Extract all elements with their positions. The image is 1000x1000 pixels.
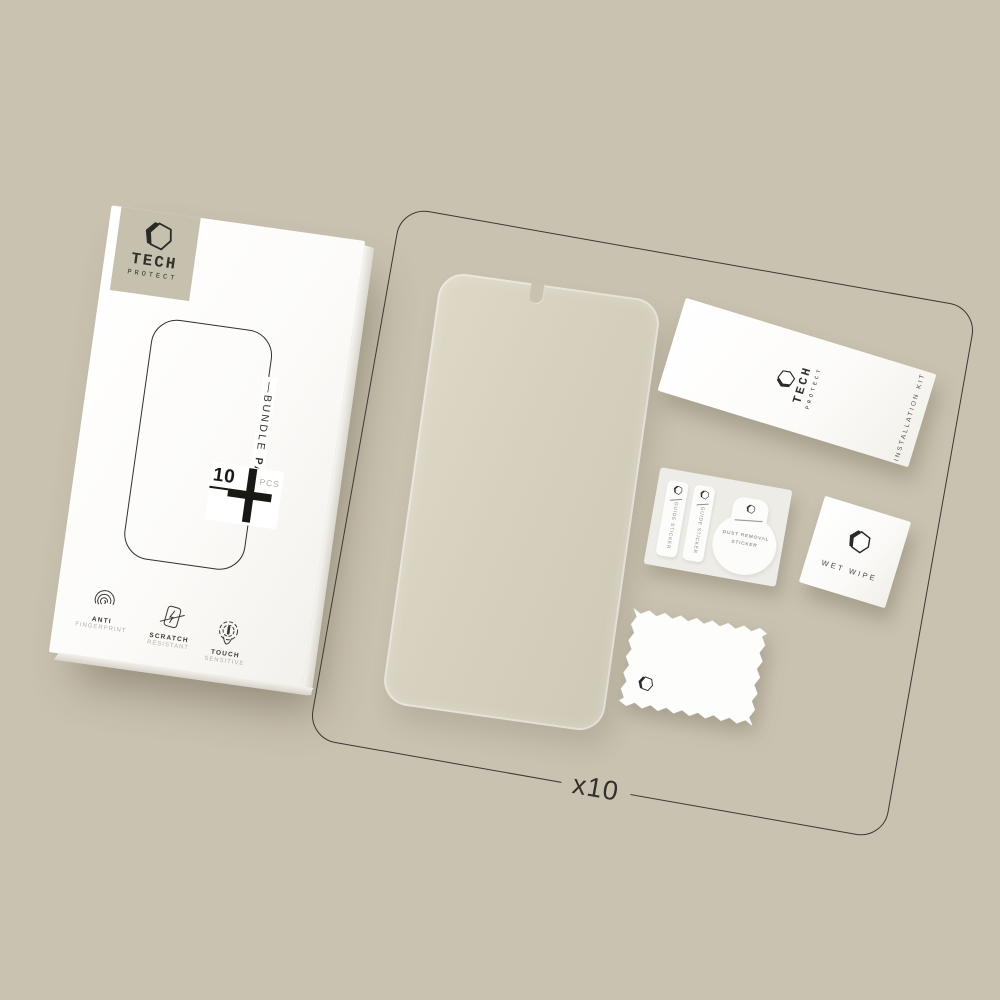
- phone-outline-graphic: [121, 316, 275, 573]
- retail-box: TECH PROTECT —BUNDLE PACK 10 PCS ANTI FI…: [49, 205, 365, 687]
- touch-icon: [211, 616, 245, 650]
- cleaning-cloth: [618, 608, 768, 726]
- feature-touch-sensitive: TOUCH SENSITIVE: [194, 614, 260, 669]
- hexagon-logo-icon: [672, 485, 683, 496]
- sticker-divider-line: [696, 503, 708, 505]
- dust-removal-sticker-label: DUST REMOVAL STICKER: [720, 528, 769, 552]
- hexagon-logo-icon: [745, 504, 756, 515]
- camera-notch-cutout: [529, 282, 546, 305]
- brand-badge: TECH PROTECT: [110, 207, 201, 301]
- dust-removal-sticker: DUST REMOVAL STICKER: [708, 493, 784, 580]
- fingerprint-icon: [88, 582, 122, 616]
- box-bottom-edge: [54, 652, 314, 695]
- hexagon-logo-icon: [843, 526, 874, 556]
- feature-scratch-resistant: SCRATCH RESISTANT: [138, 598, 204, 653]
- guide-sticker-label: GUIDE STICKER: [691, 506, 704, 554]
- quantity-label: x10: [558, 767, 633, 810]
- zigzag-cloth-shape: [618, 608, 768, 726]
- hexagon-logo-icon: [637, 676, 654, 692]
- product-photo-scene: x10 TECH PROTECT INSTALLATION KIT GUIDE …: [0, 0, 1000, 1000]
- count-unit: PCS: [259, 477, 281, 490]
- sticker-divider-line: [735, 519, 763, 522]
- brand-logo: TECH PROTECT: [770, 355, 823, 409]
- count-number: 10: [212, 464, 237, 489]
- wet-wipe-label: WET WIPE: [820, 558, 878, 584]
- scratch-icon: [155, 600, 189, 634]
- hexagon-logo-icon: [140, 219, 176, 253]
- feature-anti-fingerprint: ANTI FINGERPRINT: [71, 580, 137, 635]
- piece-count: 10 PCS: [205, 462, 284, 529]
- hexagon-logo-icon: [698, 489, 709, 500]
